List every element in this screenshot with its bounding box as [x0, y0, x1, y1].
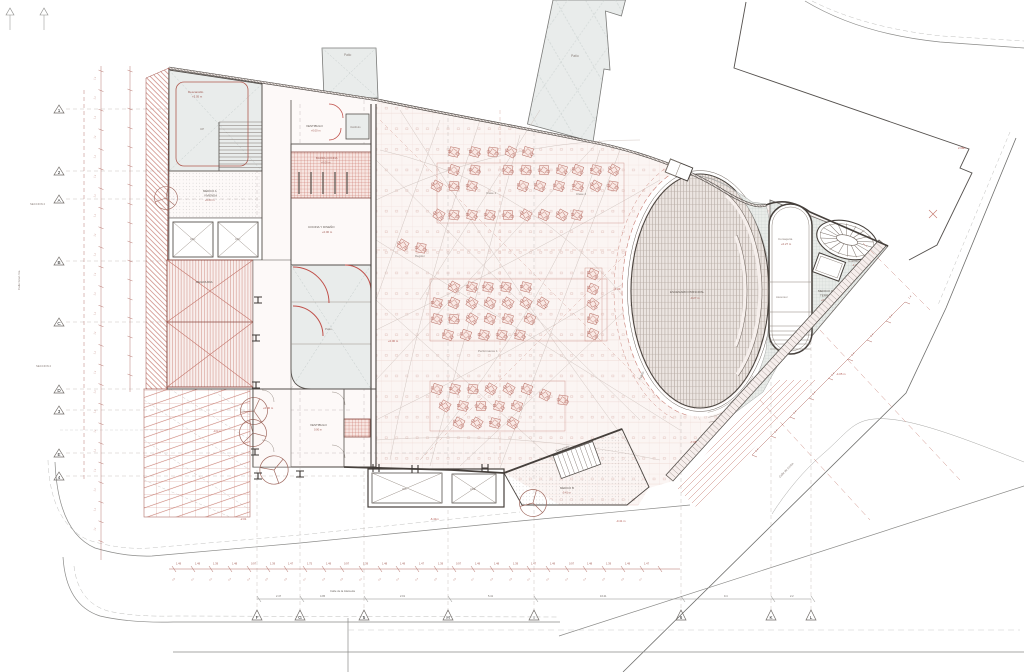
- svg-text:UP: UP: [200, 127, 204, 131]
- svg-text:Consejeria: Consejeria: [778, 237, 793, 241]
- svg-text:1.48: 1.48: [587, 562, 593, 566]
- svg-text:1.48: 1.48: [382, 562, 388, 566]
- svg-text:Descansillo: Descansillo: [188, 90, 204, 94]
- svg-text:+0.27 m: +0.27 m: [781, 242, 792, 246]
- svg-text:2.47: 2.47: [276, 594, 282, 598]
- svg-text:-0.27 m: -0.27 m: [690, 296, 700, 300]
- svg-text:MEDICO A: MEDICO A: [203, 189, 217, 193]
- svg-text:VESTIBULO: VESTIBULO: [306, 124, 324, 128]
- svg-text:Patio: Patio: [571, 54, 579, 58]
- svg-text:+0.00 m: +0.00 m: [322, 230, 333, 234]
- svg-text:+0.00 m: +0.00 m: [205, 198, 214, 202]
- svg-text:1.75: 1.75: [307, 562, 313, 566]
- svg-text:1.49: 1.49: [550, 562, 556, 566]
- svg-text:-2.01: -2.01: [240, 517, 247, 521]
- svg-text:5: 5: [363, 615, 366, 620]
- svg-text:1.49: 1.49: [625, 562, 631, 566]
- svg-text:SECCION 2: SECCION 2: [36, 364, 52, 368]
- svg-text:1.49: 1.49: [475, 562, 481, 566]
- svg-text:1.39: 1.39: [606, 562, 612, 566]
- svg-text:ASE: ASE: [470, 487, 476, 491]
- svg-text:0.97: 0.97: [251, 562, 257, 566]
- svg-text:-0.41 m: -0.41 m: [616, 519, 626, 523]
- svg-text:VIVIENDA: VIVIENDA: [204, 194, 217, 198]
- svg-text:-4.05 m: -4.05 m: [836, 372, 846, 376]
- svg-text:-7.05: -7.05: [690, 440, 697, 444]
- svg-text:REGIDURIA: REGIDURIA: [196, 280, 213, 284]
- svg-text:9.4: 9.4: [724, 594, 728, 598]
- svg-text:5.41: 5.41: [488, 594, 494, 598]
- svg-text:-1.04: -1.04: [614, 287, 621, 291]
- svg-text:4: 4: [58, 475, 61, 480]
- svg-text:0.97: 0.97: [569, 562, 575, 566]
- svg-text:Calle de la Alameda: Calle de la Alameda: [330, 589, 355, 593]
- svg-text:E: E: [57, 452, 60, 457]
- svg-text:1.47: 1.47: [644, 562, 650, 566]
- svg-text:2.08m: 2.08m: [958, 146, 966, 150]
- svg-text:1.49: 1.49: [400, 562, 406, 566]
- svg-text:-0.9 m: -0.9 m: [213, 429, 222, 433]
- svg-text:Vestibulo: Vestibulo: [350, 125, 361, 129]
- svg-text:ASC: ASC: [190, 237, 195, 241]
- svg-text:Clase 1: Clase 1: [486, 191, 497, 195]
- svg-text:ESCENARIO PRINCIPAL: ESCENARIO PRINCIPAL: [670, 290, 704, 294]
- svg-text:1.39: 1.39: [438, 562, 444, 566]
- svg-text:H: H: [446, 615, 449, 620]
- svg-text:B: B: [57, 260, 60, 265]
- svg-text:Ascensor: Ascensor: [776, 295, 788, 299]
- svg-text:1.49: 1.49: [326, 562, 332, 566]
- svg-text:+0.00 m: +0.00 m: [311, 129, 320, 133]
- svg-text:1.48: 1.48: [494, 562, 500, 566]
- svg-text:16.21: 16.21: [600, 594, 607, 598]
- svg-text:-6.41m: -6.41m: [430, 517, 439, 521]
- svg-text:1.39: 1.39: [513, 562, 519, 566]
- svg-text:+0.00 m: +0.00 m: [388, 339, 399, 343]
- svg-text:-0.41 m: -0.41 m: [562, 491, 571, 495]
- svg-text:1: 1: [58, 108, 61, 113]
- svg-text:I: I: [533, 615, 534, 620]
- svg-text:F: F: [256, 615, 259, 620]
- svg-text:Calle Gran Via: Calle Gran Via: [17, 270, 21, 290]
- svg-text:1.39: 1.39: [213, 562, 219, 566]
- svg-text:1.39: 1.39: [363, 562, 369, 566]
- svg-text:1.47: 1.47: [288, 562, 294, 566]
- svg-text:Patio: Patio: [325, 327, 332, 331]
- svg-text:ASC: ASC: [235, 237, 240, 241]
- svg-text:3: 3: [58, 409, 61, 414]
- svg-text:2.01: 2.01: [400, 594, 406, 598]
- svg-text:1.47: 1.47: [419, 562, 425, 566]
- svg-text:0.00 m: 0.00 m: [314, 428, 322, 432]
- svg-text:Patio: Patio: [344, 53, 351, 57]
- svg-text:+0.00 m: +0.00 m: [263, 406, 274, 410]
- svg-text:2.2: 2.2: [790, 594, 794, 598]
- svg-text:+3.05 m: +3.05 m: [192, 95, 203, 99]
- svg-text:L: L: [810, 615, 813, 620]
- svg-text:1.39: 1.39: [270, 562, 276, 566]
- svg-text:+0.00 m: +0.00 m: [321, 161, 330, 165]
- svg-text:6: 6: [680, 615, 683, 620]
- svg-text:2: 2: [58, 170, 61, 175]
- svg-text:1.49: 1.49: [195, 562, 201, 566]
- svg-text:WC: WC: [402, 487, 407, 491]
- svg-text:SECCION 2: SECCION 2: [30, 202, 46, 206]
- svg-text:MEDICO B: MEDICO B: [560, 486, 574, 490]
- svg-text:Regidor: Regidor: [415, 254, 425, 258]
- svg-text:0.97: 0.97: [344, 562, 350, 566]
- svg-text:1.48: 1.48: [232, 562, 238, 566]
- svg-text:0.97: 0.97: [456, 562, 462, 566]
- svg-text:VESTIBULO: VESTIBULO: [310, 423, 328, 427]
- svg-text:1.49: 1.49: [176, 562, 182, 566]
- svg-text:COCINA Y DISEÑO: COCINA Y DISEÑO: [308, 224, 335, 229]
- svg-text:1.47: 1.47: [531, 562, 537, 566]
- svg-text:4.95: 4.95: [320, 594, 326, 598]
- svg-text:Clase 2: Clase 2: [576, 192, 587, 196]
- svg-text:Performance 1: Performance 1: [478, 349, 498, 353]
- svg-text:G: G: [298, 615, 302, 620]
- svg-text:BARRA-COCINA: BARRA-COCINA: [316, 156, 338, 160]
